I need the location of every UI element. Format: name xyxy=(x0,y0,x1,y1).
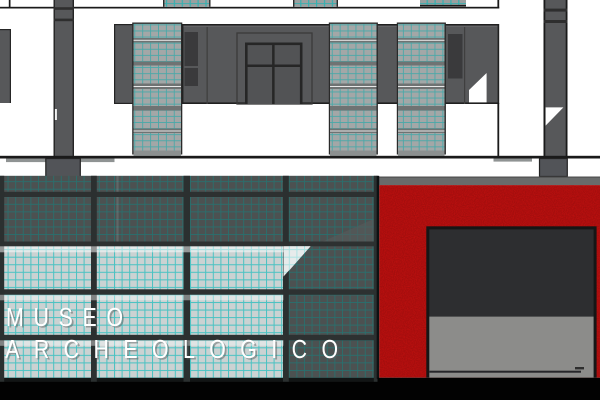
svg-text:MUSEO: MUSEO xyxy=(6,303,133,333)
svg-text:ARCHEOLOGICO: ARCHEOLOGICO xyxy=(5,335,352,365)
